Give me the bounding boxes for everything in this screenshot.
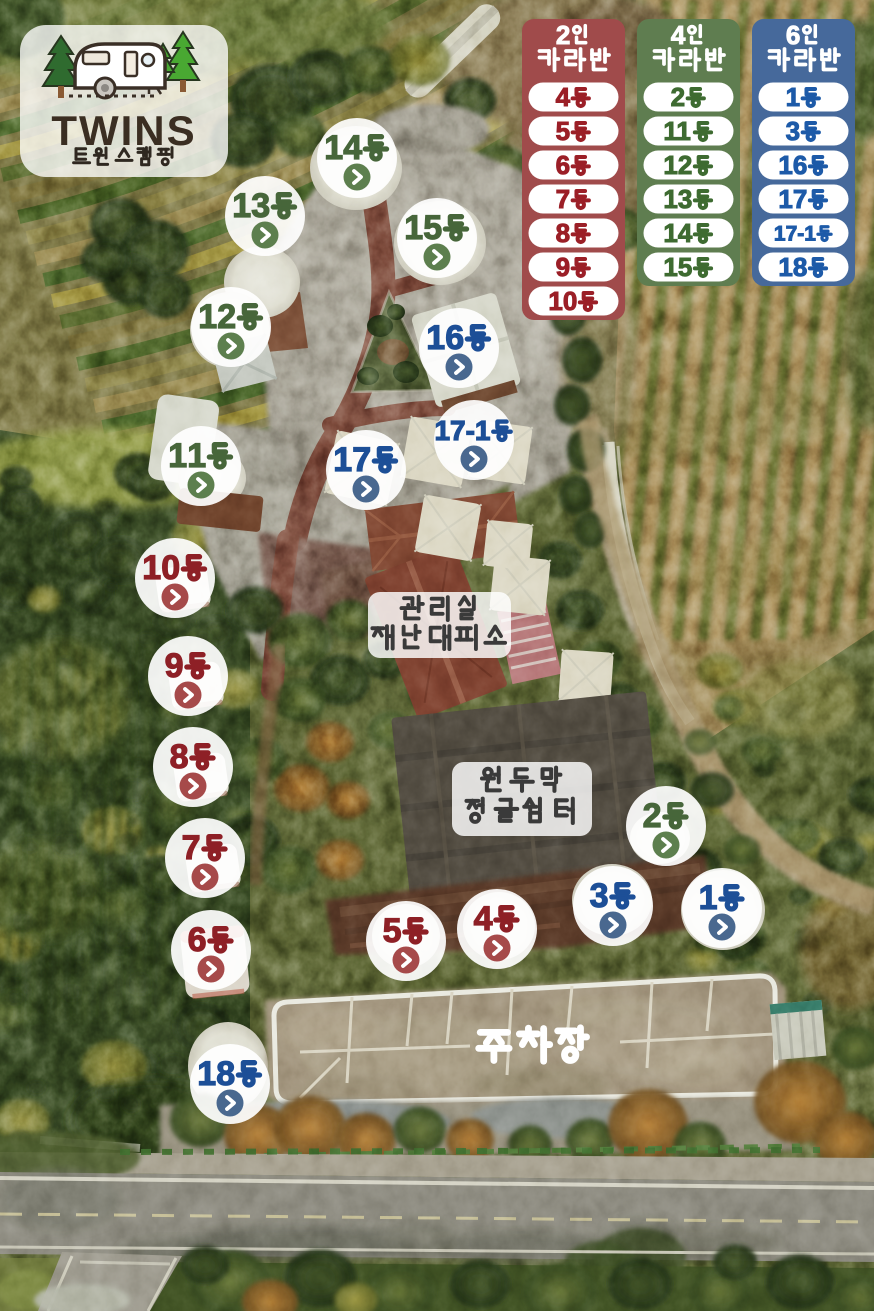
svg-text:12: 12 [663, 150, 692, 180]
svg-text:10: 10 [142, 549, 180, 587]
svg-text:7: 7 [556, 184, 570, 214]
svg-text:2: 2 [671, 82, 685, 112]
svg-text:13: 13 [663, 184, 692, 214]
svg-text:1: 1 [786, 82, 800, 112]
svg-text:5: 5 [383, 912, 402, 950]
svg-text:9: 9 [556, 252, 570, 282]
svg-text:8: 8 [170, 738, 189, 776]
svg-text:5: 5 [556, 116, 570, 146]
svg-text:18: 18 [197, 1055, 235, 1093]
svg-text:4: 4 [671, 20, 686, 50]
svg-text:15: 15 [663, 252, 692, 282]
svg-text:16: 16 [426, 319, 464, 357]
svg-text:15: 15 [404, 209, 442, 247]
svg-text:2: 2 [643, 797, 662, 835]
svg-text:10: 10 [548, 286, 577, 316]
svg-text:4: 4 [556, 82, 571, 112]
svg-text:9: 9 [165, 647, 184, 685]
svg-text:13: 13 [232, 187, 270, 225]
svg-text:3: 3 [590, 877, 609, 915]
svg-text:11: 11 [168, 437, 206, 475]
svg-text:14: 14 [663, 218, 692, 248]
svg-text:17: 17 [333, 441, 371, 479]
svg-text:17-1: 17-1 [435, 415, 491, 446]
svg-text:11: 11 [663, 116, 691, 146]
svg-text:3: 3 [786, 116, 800, 146]
svg-text:17-1: 17-1 [774, 223, 816, 246]
svg-text:7: 7 [182, 829, 201, 867]
svg-text:1: 1 [699, 879, 718, 917]
svg-text:6: 6 [556, 150, 570, 180]
svg-text:14: 14 [324, 129, 362, 167]
svg-text:4: 4 [474, 900, 493, 938]
svg-text:6: 6 [786, 20, 800, 50]
svg-text:17: 17 [778, 184, 807, 214]
svg-text:8: 8 [556, 218, 570, 248]
svg-text:TWINS: TWINS [51, 107, 196, 154]
svg-text:16: 16 [778, 150, 807, 180]
svg-text:18: 18 [778, 252, 807, 282]
svg-text:6: 6 [188, 921, 207, 959]
svg-text:2: 2 [556, 20, 570, 50]
svg-text:12: 12 [198, 298, 236, 336]
